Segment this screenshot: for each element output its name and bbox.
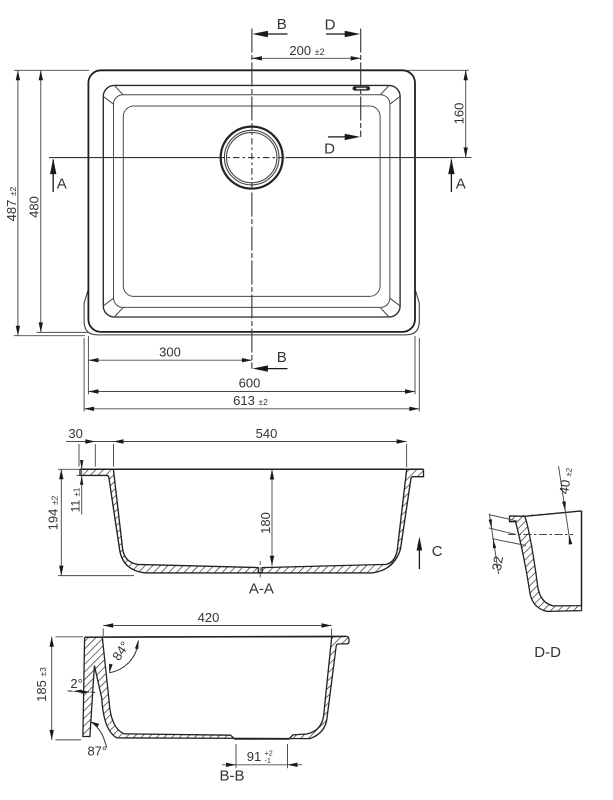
- svg-text:300: 300: [159, 344, 181, 359]
- svg-text:A: A: [57, 176, 67, 193]
- svg-text:160: 160: [451, 103, 466, 125]
- svg-text:600: 600: [239, 376, 261, 391]
- svg-text:87°: 87°: [87, 744, 107, 759]
- svg-text:B: B: [277, 16, 287, 33]
- svg-text:C: C: [432, 543, 443, 560]
- svg-text:-1: -1: [265, 756, 271, 765]
- svg-text:A-A: A-A: [249, 581, 274, 598]
- svg-text:D: D: [324, 141, 335, 158]
- svg-text:30: 30: [68, 426, 82, 441]
- svg-text:91: 91: [247, 749, 261, 764]
- svg-text:D: D: [325, 17, 336, 34]
- svg-text:B-B: B-B: [219, 768, 244, 785]
- svg-text:D-D: D-D: [534, 644, 561, 661]
- svg-text:B: B: [277, 349, 287, 366]
- svg-text:420: 420: [198, 610, 220, 625]
- svg-text:32: 32: [489, 555, 506, 572]
- svg-text:180: 180: [258, 512, 273, 534]
- svg-text:540: 540: [256, 426, 278, 441]
- svg-text:2°: 2°: [70, 676, 82, 691]
- svg-text:A: A: [456, 176, 466, 193]
- svg-text:480: 480: [27, 196, 42, 218]
